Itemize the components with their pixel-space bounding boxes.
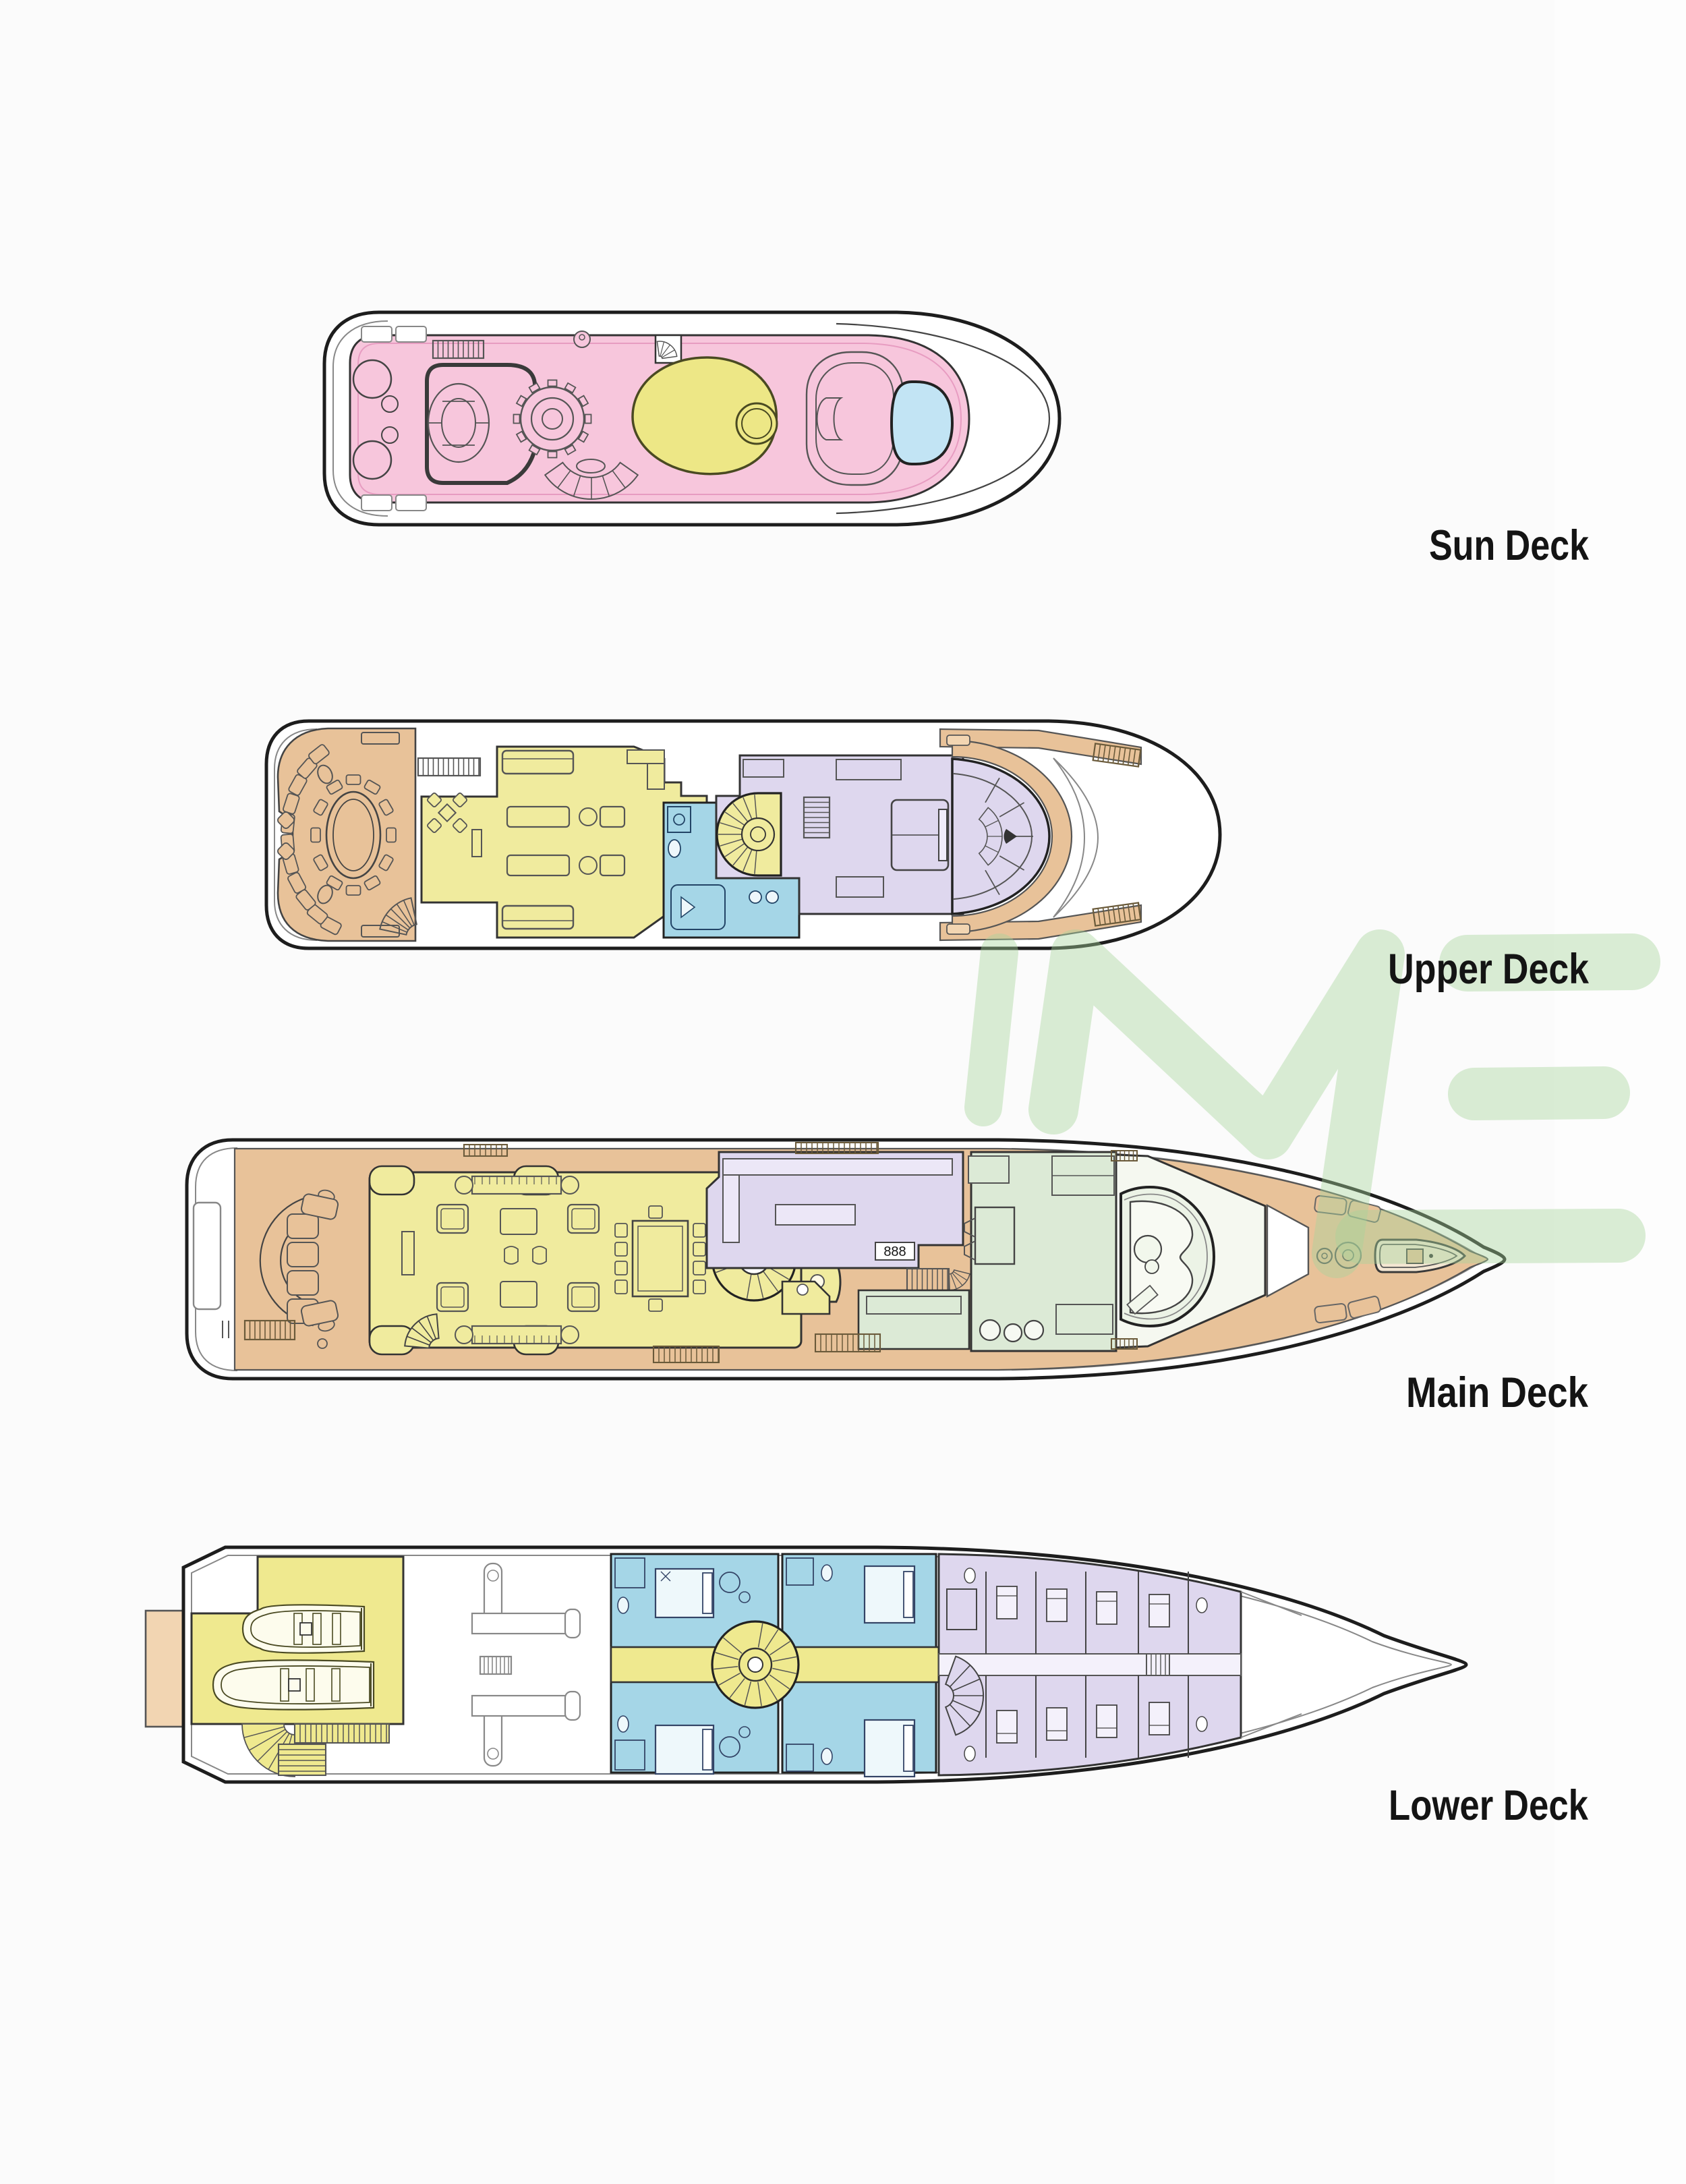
svg-text:Lower Deck: Lower Deck xyxy=(1389,1782,1589,1829)
svg-text:888: 888 xyxy=(883,1244,906,1259)
svg-text:Upper Deck: Upper Deck xyxy=(1388,946,1590,993)
svg-text:Sun Deck: Sun Deck xyxy=(1429,522,1590,569)
svg-text:Main Deck: Main Deck xyxy=(1406,1369,1589,1416)
